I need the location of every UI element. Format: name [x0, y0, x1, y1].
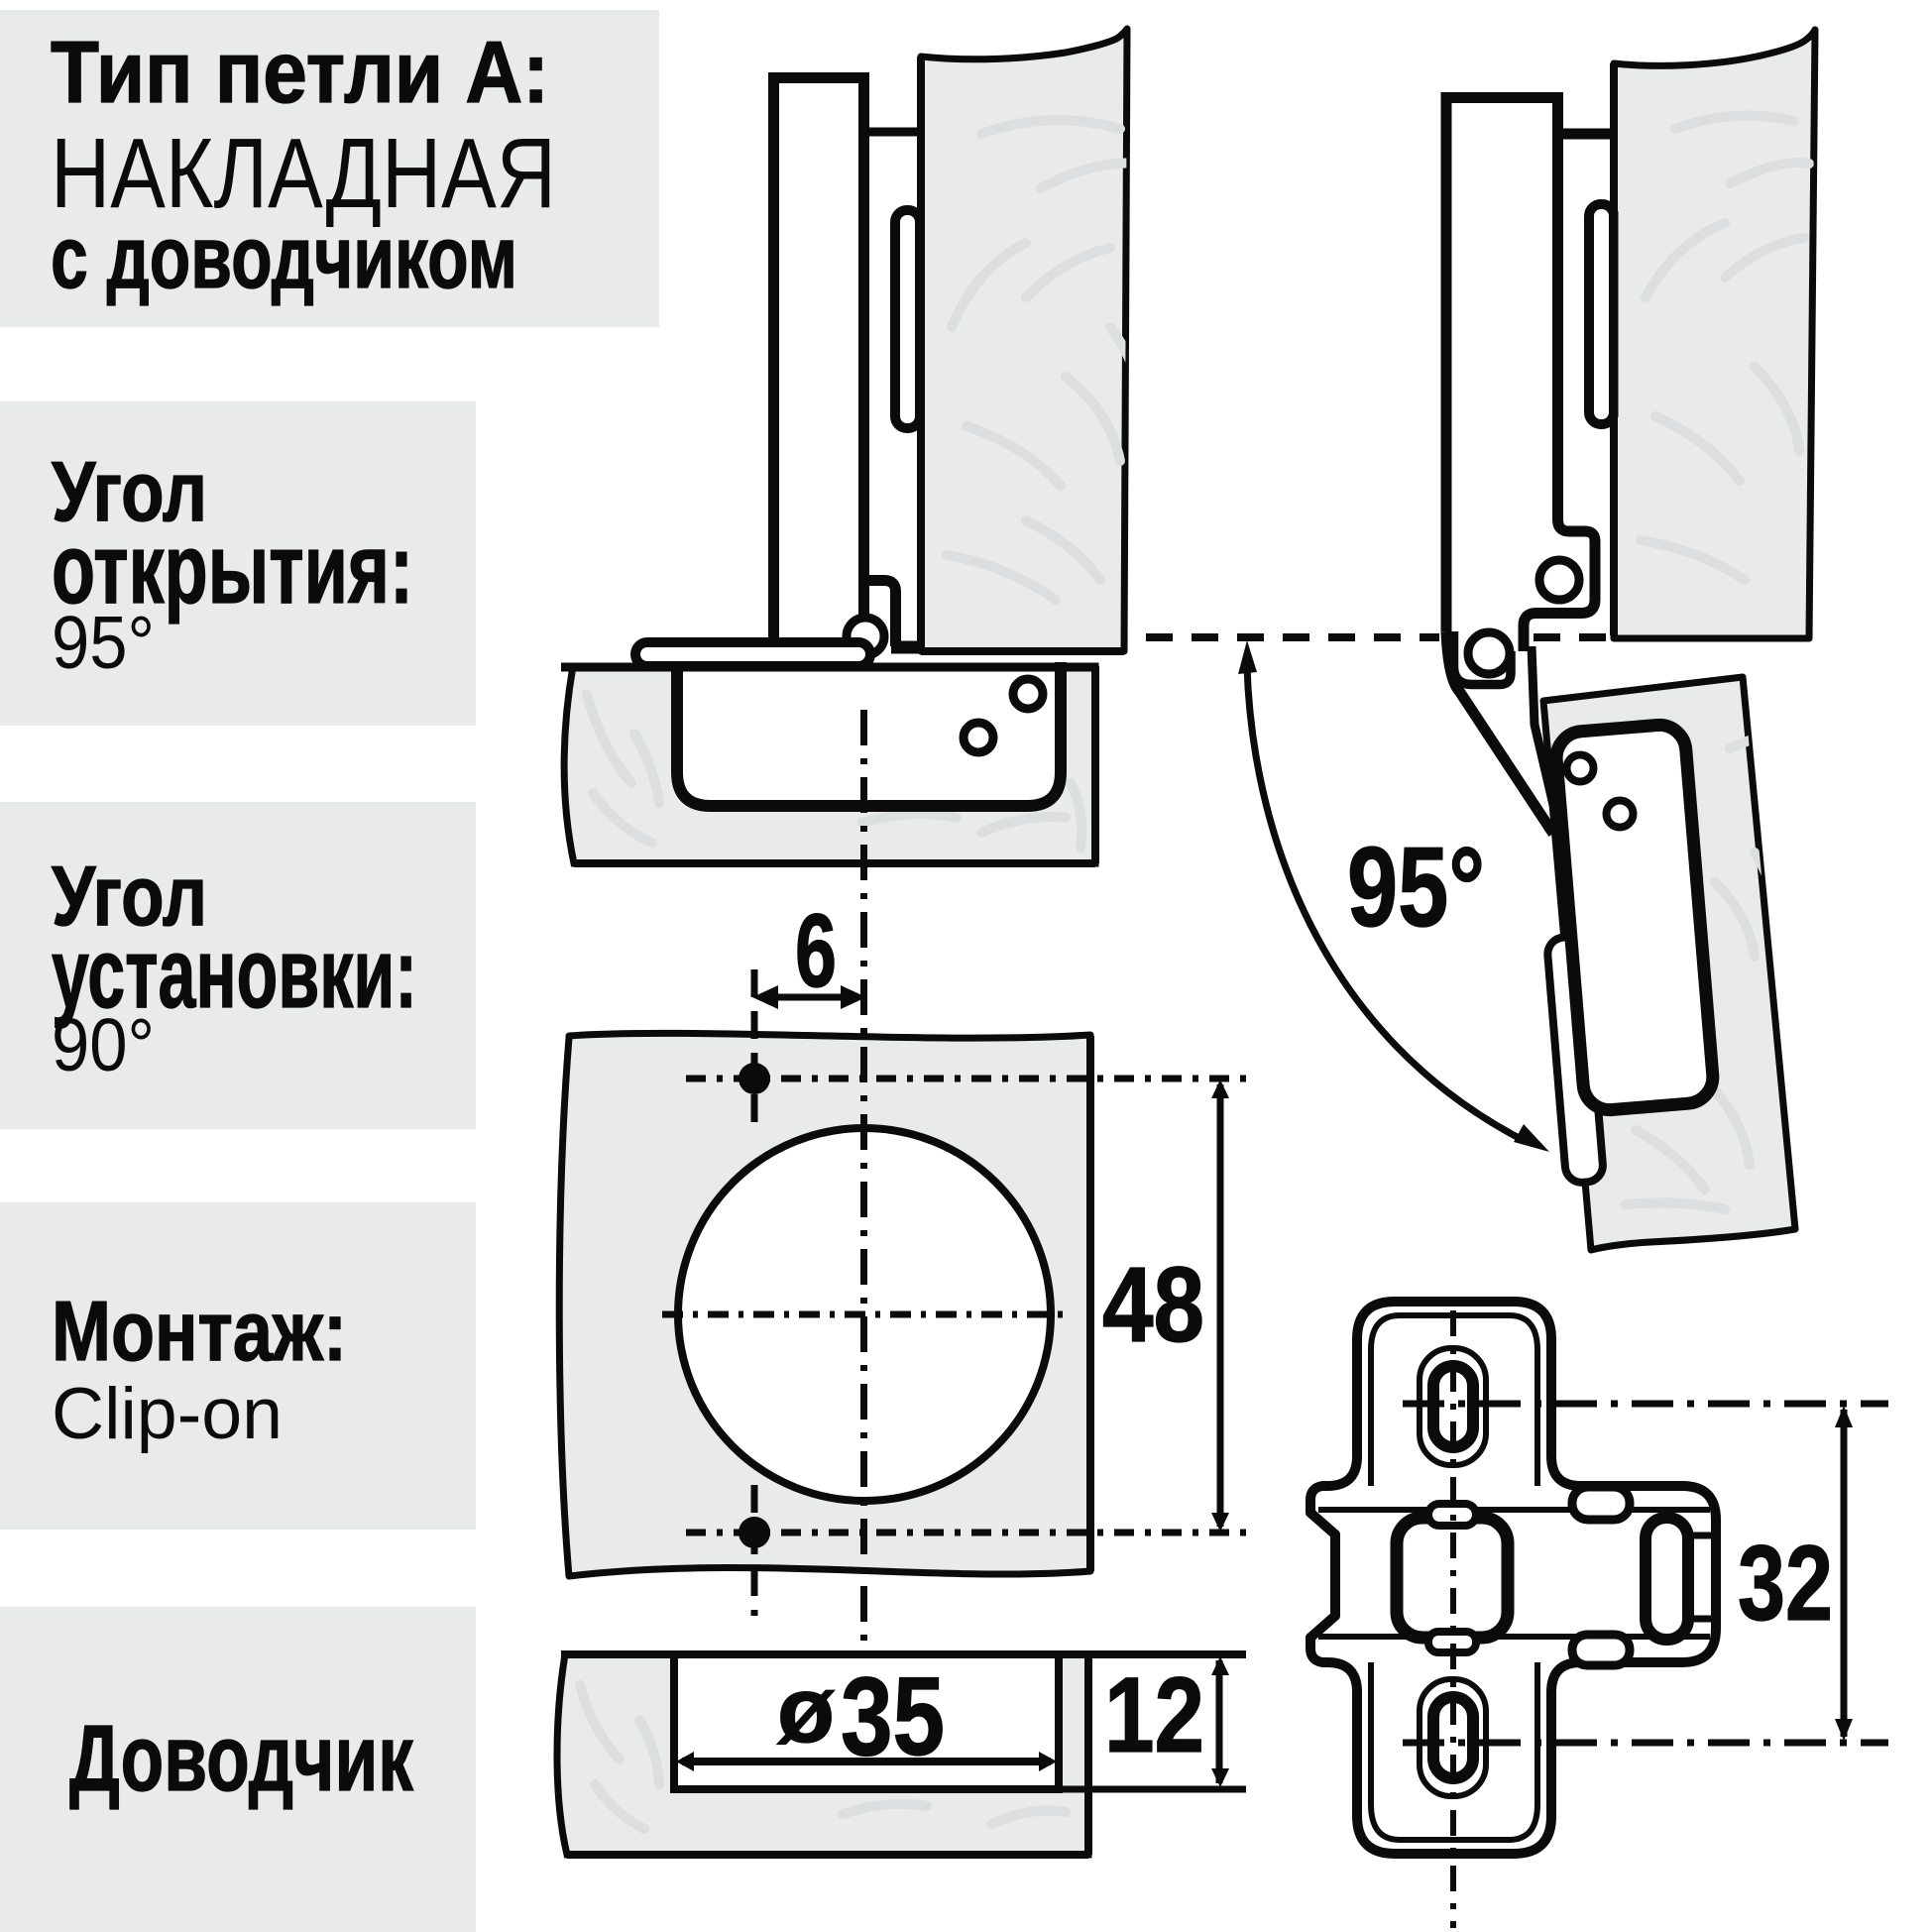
svg-text:Clip-on: Clip-on [52, 1374, 283, 1454]
svg-text:Тип петли А:: Тип петли А: [51, 23, 549, 121]
svg-text:с доводчиком: с доводчиком [51, 207, 517, 306]
svg-text:32: 32 [1738, 1523, 1833, 1643]
svg-text:ø: ø [777, 1657, 835, 1762]
svg-text:6: 6 [795, 893, 837, 1009]
svg-text:95°: 95° [1347, 825, 1485, 951]
svg-text:12: 12 [1104, 1654, 1204, 1774]
svg-text:48: 48 [1102, 1244, 1204, 1364]
svg-text:Монтаж:: Монтаж: [52, 1285, 347, 1379]
svg-text:Доводчик: Доводчик [69, 1706, 413, 1811]
svg-text:90°: 90° [52, 1003, 155, 1086]
svg-text:95°: 95° [52, 601, 155, 684]
